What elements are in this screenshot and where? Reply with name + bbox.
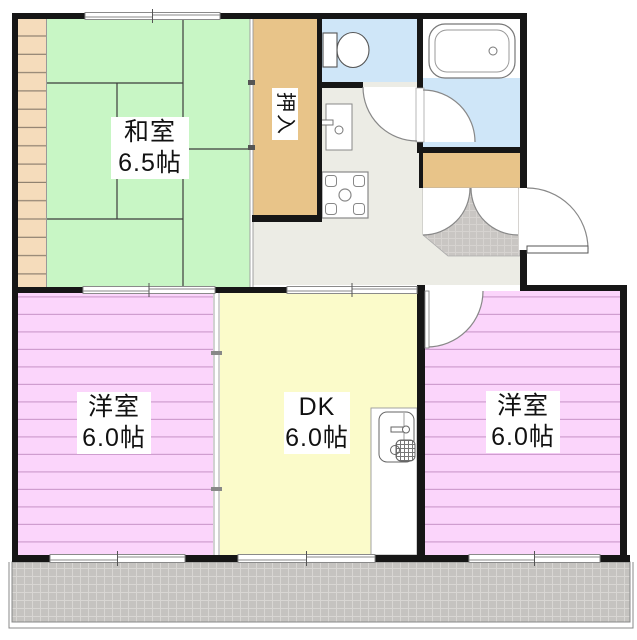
room-size: 6.5帖 (111, 148, 189, 179)
label-dk: DK 6.0帖 (284, 392, 350, 454)
room-size: 6.0帖 (486, 422, 560, 453)
entrance-door-leaf (527, 246, 588, 253)
veranda-strip (18, 19, 46, 287)
room-size: 6.0帖 (77, 423, 151, 454)
washing-machine-pan-icon (322, 172, 368, 218)
bathtub-icon (429, 24, 515, 78)
room-name: 洋室 (486, 391, 560, 422)
toilet-icon (323, 33, 369, 68)
youshitsu-right-doorway (427, 285, 483, 291)
washbasin-icon (321, 104, 352, 150)
label-youshitsu-left: 洋室 6.0帖 (77, 392, 151, 454)
floorplan-drawing (0, 0, 637, 640)
room-size: 6.0帖 (284, 423, 350, 454)
entrance-doorway (519, 188, 528, 250)
entrance-door-arc (527, 188, 588, 249)
youshitsu-right-door-leaf (425, 291, 429, 348)
room-name: DK (284, 392, 350, 423)
kitchen-sink-icon (379, 412, 415, 462)
floorplan: 和室 6.5帖 押入 洋室 6.0帖 DK 6.0帖 洋室 6.0帖 (0, 0, 637, 640)
balcony (12, 562, 630, 622)
label-oshiire: 押入 (272, 88, 298, 140)
shoe-closet (423, 153, 520, 188)
closet-name: 押入 (274, 92, 296, 136)
label-youshitsu-right: 洋室 6.0帖 (486, 391, 560, 453)
bath-doorway (416, 88, 424, 142)
room-name: 洋室 (77, 392, 151, 423)
room-name: 和室 (111, 117, 189, 148)
label-washitsu: 和室 6.5帖 (111, 117, 189, 179)
